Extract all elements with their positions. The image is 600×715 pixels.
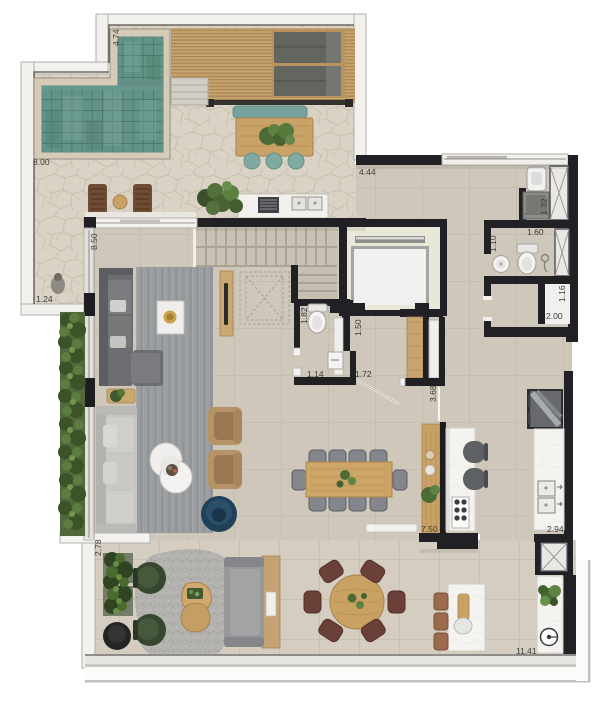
svg-text:1.50: 1.50	[353, 319, 363, 336]
svg-text:1.82: 1.82	[299, 307, 309, 324]
svg-text:4.44: 4.44	[359, 167, 376, 177]
svg-text:4.74: 4.74	[111, 29, 121, 46]
svg-text:1.10: 1.10	[488, 235, 498, 252]
svg-text:8.50: 8.50	[89, 233, 99, 250]
svg-text:2.94: 2.94	[547, 524, 564, 534]
svg-text:1.72: 1.72	[355, 369, 372, 379]
svg-text:2.00: 2.00	[546, 311, 563, 321]
svg-text:1.16: 1.16	[557, 285, 567, 302]
svg-text:8.00: 8.00	[33, 157, 50, 167]
svg-text:1.24: 1.24	[36, 294, 53, 304]
svg-text:1.60: 1.60	[527, 227, 544, 237]
svg-text:7.50: 7.50	[421, 524, 438, 534]
svg-text:11.41: 11.41	[516, 646, 537, 656]
svg-text:3.68: 3.68	[428, 385, 438, 402]
svg-text:1.14: 1.14	[307, 369, 324, 379]
svg-text:1.32: 1.32	[539, 198, 549, 215]
svg-text:2.78: 2.78	[93, 539, 103, 556]
